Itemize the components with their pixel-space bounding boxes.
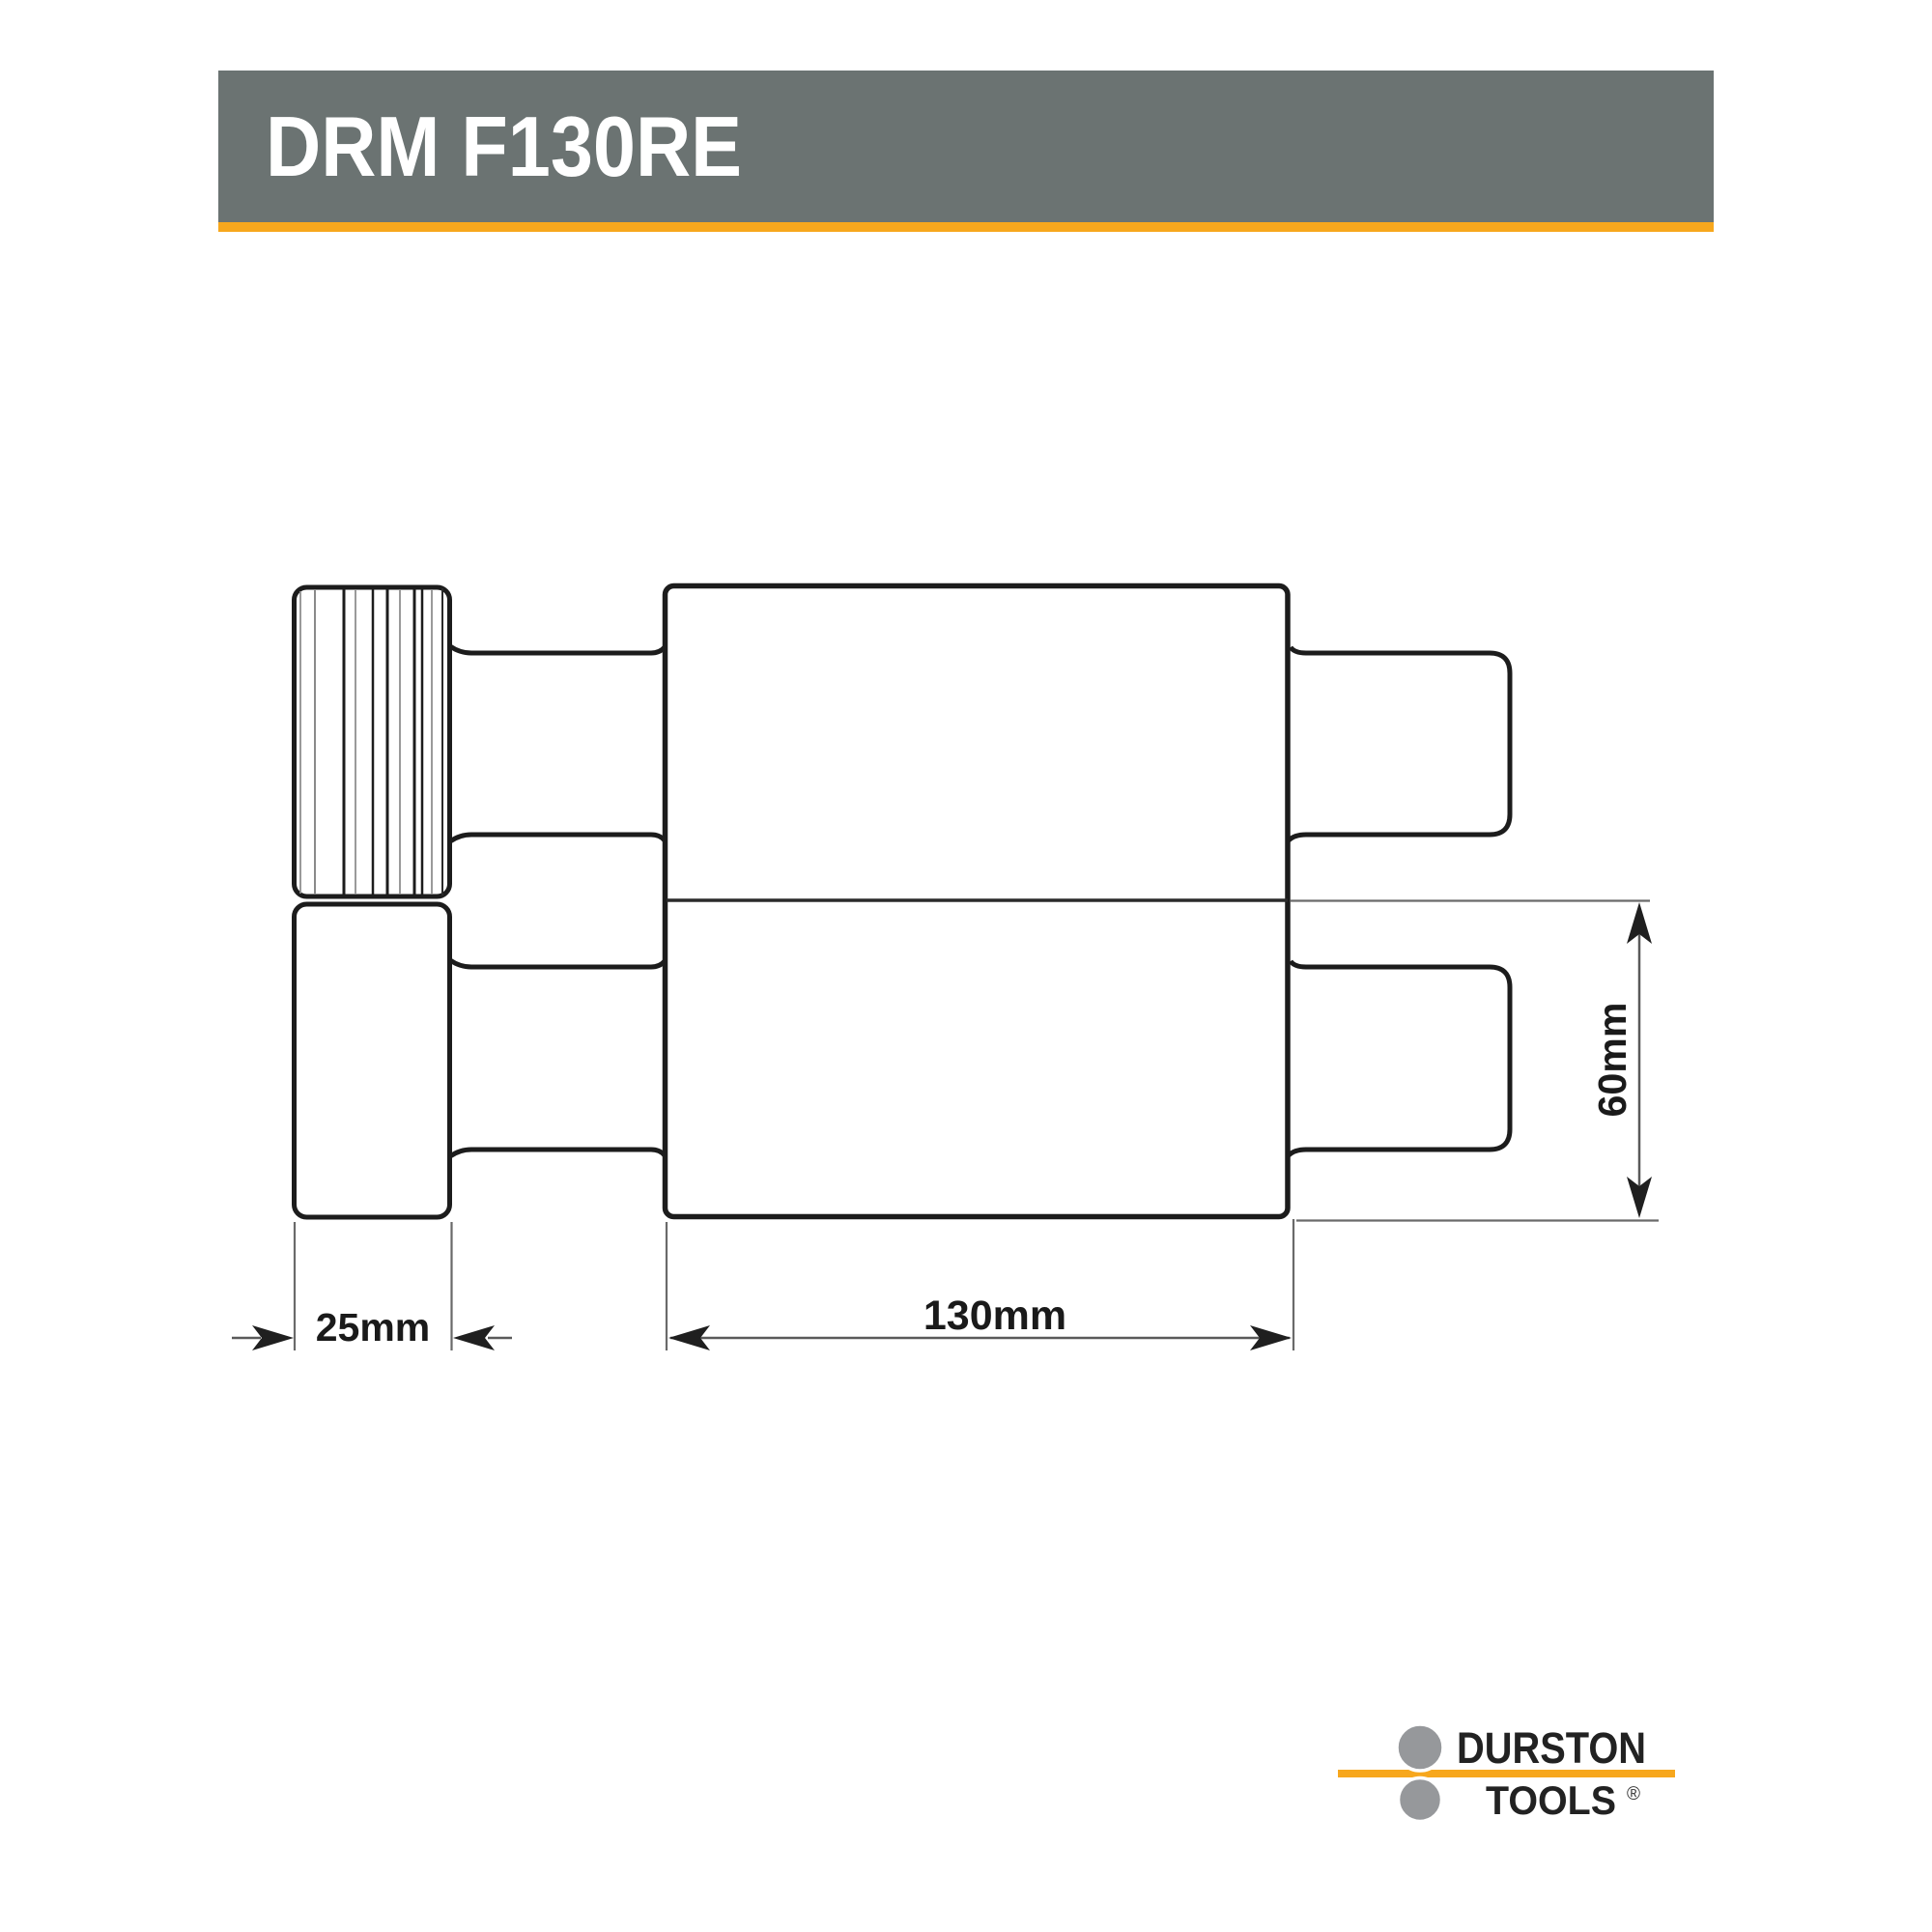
svg-text:DRM F130RE: DRM F130RE [266,99,742,194]
svg-text:DURSTON: DURSTON [1457,1723,1646,1773]
svg-text:130mm: 130mm [923,1293,1066,1339]
svg-text:®: ® [1627,1784,1640,1804]
svg-text:60mm: 60mm [1590,1003,1634,1118]
svg-text:TOOLS: TOOLS [1486,1777,1616,1823]
svg-text:25mm: 25mm [316,1305,431,1350]
